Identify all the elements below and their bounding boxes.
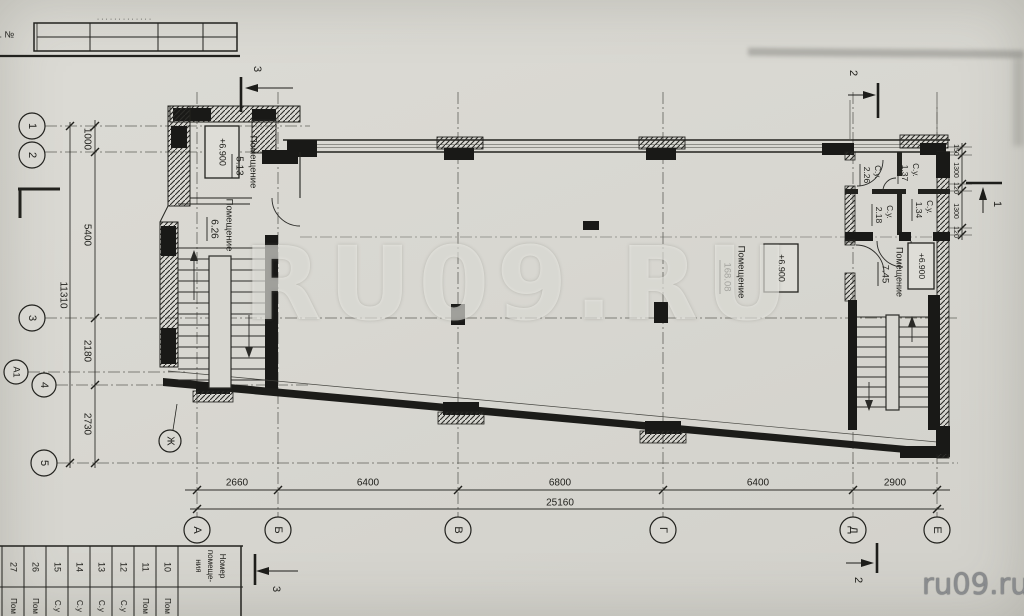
column bbox=[451, 304, 465, 325]
titleblock-table bbox=[0, 23, 240, 56]
axis-col-v: В bbox=[452, 526, 464, 533]
room-table-num-4: 13 bbox=[97, 562, 107, 572]
room-626-title: Помещение bbox=[223, 199, 234, 252]
axis-bubble-labels: 1 2 3 А1 4 5 Ж А Б В Г Д Е bbox=[12, 123, 943, 534]
door-arcs bbox=[272, 160, 933, 273]
room-table-num-7: 10 bbox=[163, 562, 173, 572]
section-2-bottom: 2 bbox=[852, 577, 864, 583]
room-745-elev: +6.900 bbox=[917, 253, 927, 280]
room-su226-title: С.у. bbox=[873, 165, 882, 178]
room-table-num-3: 14 bbox=[75, 562, 85, 572]
dim-left-0: 1000 bbox=[81, 128, 92, 151]
room-table-header-1: Номер bbox=[218, 554, 227, 579]
titleblock-inv-label: нв. № bbox=[0, 29, 15, 39]
room-168-area: 168.08 bbox=[721, 262, 732, 291]
dim-left-3: 2730 bbox=[81, 413, 92, 436]
room-table-name-7: Пом bbox=[163, 598, 172, 614]
room-table-num-2: 15 bbox=[53, 562, 63, 572]
room-table-name-0: Пом bbox=[9, 598, 18, 614]
axis-col-e: Е bbox=[931, 526, 943, 533]
room-table-name-5: С.у bbox=[119, 600, 128, 612]
watermark-corner: ru09.ru bbox=[922, 570, 1024, 599]
room-table-num-5: 12 bbox=[119, 562, 129, 572]
room-table-num-0: 27 bbox=[9, 562, 19, 572]
axis-row-1: 1 bbox=[26, 123, 38, 129]
room-su137-title: С.у. bbox=[911, 163, 920, 176]
dim-bottom-total: 25160 bbox=[546, 498, 574, 509]
floor-plan-svg: 1000 5400 2180 2730 11310 2660 6400 6800… bbox=[0, 0, 1024, 616]
room-su226-area: 2.26 bbox=[862, 167, 872, 184]
room-table-name-4: С.у bbox=[97, 600, 106, 612]
room-su218-area: 2.18 bbox=[874, 207, 884, 224]
axis-col-a: А bbox=[191, 526, 203, 534]
room-168-title: Помещение bbox=[735, 246, 746, 299]
dimension-ticks bbox=[66, 122, 966, 513]
axis-row-3: 3 bbox=[26, 315, 38, 321]
room-su137-area: 1.37 bbox=[900, 165, 910, 182]
section-1-right: 1 bbox=[991, 201, 1003, 207]
column bbox=[654, 302, 668, 323]
axis-row-4: 4 bbox=[38, 382, 50, 388]
axis-col-g: Г bbox=[657, 527, 669, 533]
room-table-num-1: 26 bbox=[31, 562, 41, 572]
room-626-area: 6.26 bbox=[208, 219, 219, 239]
room-168-elev: +6.900 bbox=[777, 254, 787, 282]
room-table-num-6: 11 bbox=[141, 562, 151, 571]
room-su134-title: С.у. bbox=[925, 200, 934, 213]
dim-bottom-4: 2900 bbox=[884, 478, 907, 489]
walls bbox=[160, 100, 950, 458]
room-513-title: Помещение bbox=[247, 136, 258, 189]
fold-mark bbox=[18, 189, 60, 218]
axis-row-5: 5 bbox=[38, 460, 50, 466]
section-3-top: 3 bbox=[251, 66, 263, 72]
room-513-area: 5.13 bbox=[233, 156, 244, 176]
room-745-area: 7.45 bbox=[879, 265, 890, 284]
room-table-name-1: Пом bbox=[31, 598, 40, 614]
axis-row-a1: А1 bbox=[12, 366, 22, 377]
axis-col-d: Д bbox=[847, 526, 859, 534]
scanned-floor-plan-page: 1000 5400 2180 2730 11310 2660 6400 6800… bbox=[0, 0, 1024, 616]
room-su134-area: 1.34 bbox=[914, 202, 924, 219]
dim-right-2: 120 bbox=[952, 182, 959, 194]
dim-left-1: 5400 bbox=[81, 224, 92, 247]
stair-right bbox=[857, 315, 928, 411]
room-745-title: Помещение bbox=[895, 247, 905, 297]
section-2-top: 2 bbox=[847, 70, 859, 76]
room-table-name-2: С.у bbox=[53, 600, 62, 612]
dim-left-2: 2180 bbox=[81, 340, 92, 363]
room-table-name-3: С.у bbox=[75, 600, 84, 612]
dim-bottom-2: 6800 bbox=[549, 478, 572, 489]
room-513-elev: +6.900 bbox=[218, 138, 228, 166]
titleblock-dots: ············· bbox=[97, 16, 153, 23]
dim-right-4: 120 bbox=[952, 226, 959, 238]
column bbox=[583, 221, 599, 230]
dim-bottom-3: 6400 bbox=[747, 478, 770, 489]
dim-bottom-0: 2660 bbox=[226, 478, 249, 489]
axis-bubbles bbox=[4, 113, 950, 543]
room-table-name-6: Пом bbox=[141, 598, 150, 614]
dim-left-total: 11310 bbox=[57, 281, 68, 309]
room-table-text: Номер помеще- ния 27 26 15 14 13 12 11 1… bbox=[9, 550, 227, 614]
axis-col-b: Б bbox=[272, 526, 284, 533]
dim-right-1: 1300 bbox=[952, 162, 959, 178]
scan-smudge bbox=[1013, 58, 1024, 146]
section-3-bottom: 3 bbox=[270, 586, 282, 592]
axis-row-zh: Ж bbox=[164, 436, 175, 446]
room-table-header-3: ния bbox=[194, 559, 203, 572]
axis-row-2: 2 bbox=[26, 152, 38, 158]
dim-right-3: 1300 bbox=[952, 203, 959, 219]
dim-bottom-1: 6400 bbox=[357, 478, 380, 489]
room-table-header-2: помеще- bbox=[206, 550, 215, 583]
dim-right-0: 150 bbox=[952, 144, 959, 156]
room-su218-title: С.у. bbox=[885, 205, 894, 218]
